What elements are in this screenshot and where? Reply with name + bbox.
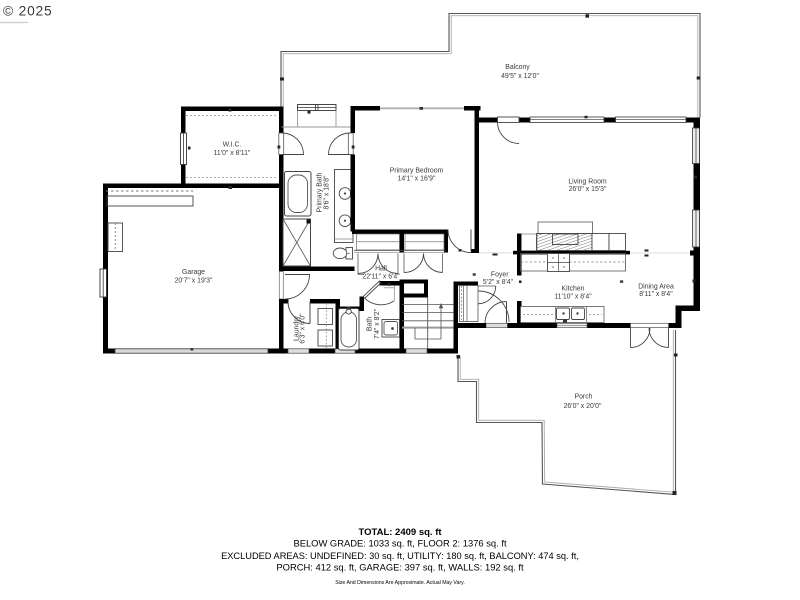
svg-text:6'3" x 6'0": 6'3" x 6'0" <box>299 313 306 344</box>
svg-text:Dining Area: Dining Area <box>638 283 674 290</box>
svg-text:Kitchen: Kitchen <box>562 285 585 292</box>
svg-text:W.I.C.: W.I.C. <box>223 141 242 148</box>
svg-text:11'0" x 8'11": 11'0" x 8'11" <box>214 150 251 157</box>
svg-text:7'4" x 8'2": 7'4" x 8'2" <box>374 308 381 339</box>
svg-text:Primary Bedroom: Primary Bedroom <box>390 167 444 174</box>
svg-text:22'11" x 6'4": 22'11" x 6'4" <box>362 273 400 280</box>
svg-text:26'0" x 15'3": 26'0" x 15'3" <box>569 186 607 193</box>
svg-text:26'0" x 20'0": 26'0" x 20'0" <box>564 403 602 410</box>
svg-text:Garage: Garage <box>182 269 205 276</box>
svg-text:EXCLUDED AREAS: UNDEFINED: 30: EXCLUDED AREAS: UNDEFINED: 30 sq. ft, UT… <box>221 551 579 561</box>
svg-text:Living Room: Living Room <box>568 178 607 185</box>
svg-text:5'2" x 8'4": 5'2" x 8'4" <box>483 279 514 286</box>
svg-text:PORCH: 412 sq. ft, GARAGE: 397: PORCH: 412 sq. ft, GARAGE: 397 sq. ft, W… <box>276 561 524 572</box>
svg-text:Hall: Hall <box>375 265 387 272</box>
svg-text:Primary Bath: Primary Bath <box>316 172 323 212</box>
svg-text:© 2025: © 2025 <box>3 4 53 19</box>
svg-text:Balcony: Balcony <box>505 64 530 71</box>
svg-text:Size And Dimensions Are Approx: Size And Dimensions Are Approximate. Act… <box>335 580 465 586</box>
svg-text:Foyer: Foyer <box>491 271 509 278</box>
svg-text:8'11" x 8'4": 8'11" x 8'4" <box>639 291 673 298</box>
svg-text:20'7" x 19'3": 20'7" x 19'3" <box>175 277 213 284</box>
svg-text:49'5" x 12'0": 49'5" x 12'0" <box>501 73 539 80</box>
svg-text:14'1" x 16'9": 14'1" x 16'9" <box>398 175 436 182</box>
svg-text:Bath: Bath <box>366 317 373 331</box>
svg-text:Porch: Porch <box>574 393 592 400</box>
svg-text:BELOW GRADE: 1033 sq. ft, FLOO: BELOW GRADE: 1033 sq. ft, FLOOR 2: 1376 … <box>293 537 507 548</box>
svg-text:8'6" x 18'8": 8'6" x 18'8" <box>323 175 330 210</box>
svg-text:11'10" x 8'4": 11'10" x 8'4" <box>554 293 592 300</box>
